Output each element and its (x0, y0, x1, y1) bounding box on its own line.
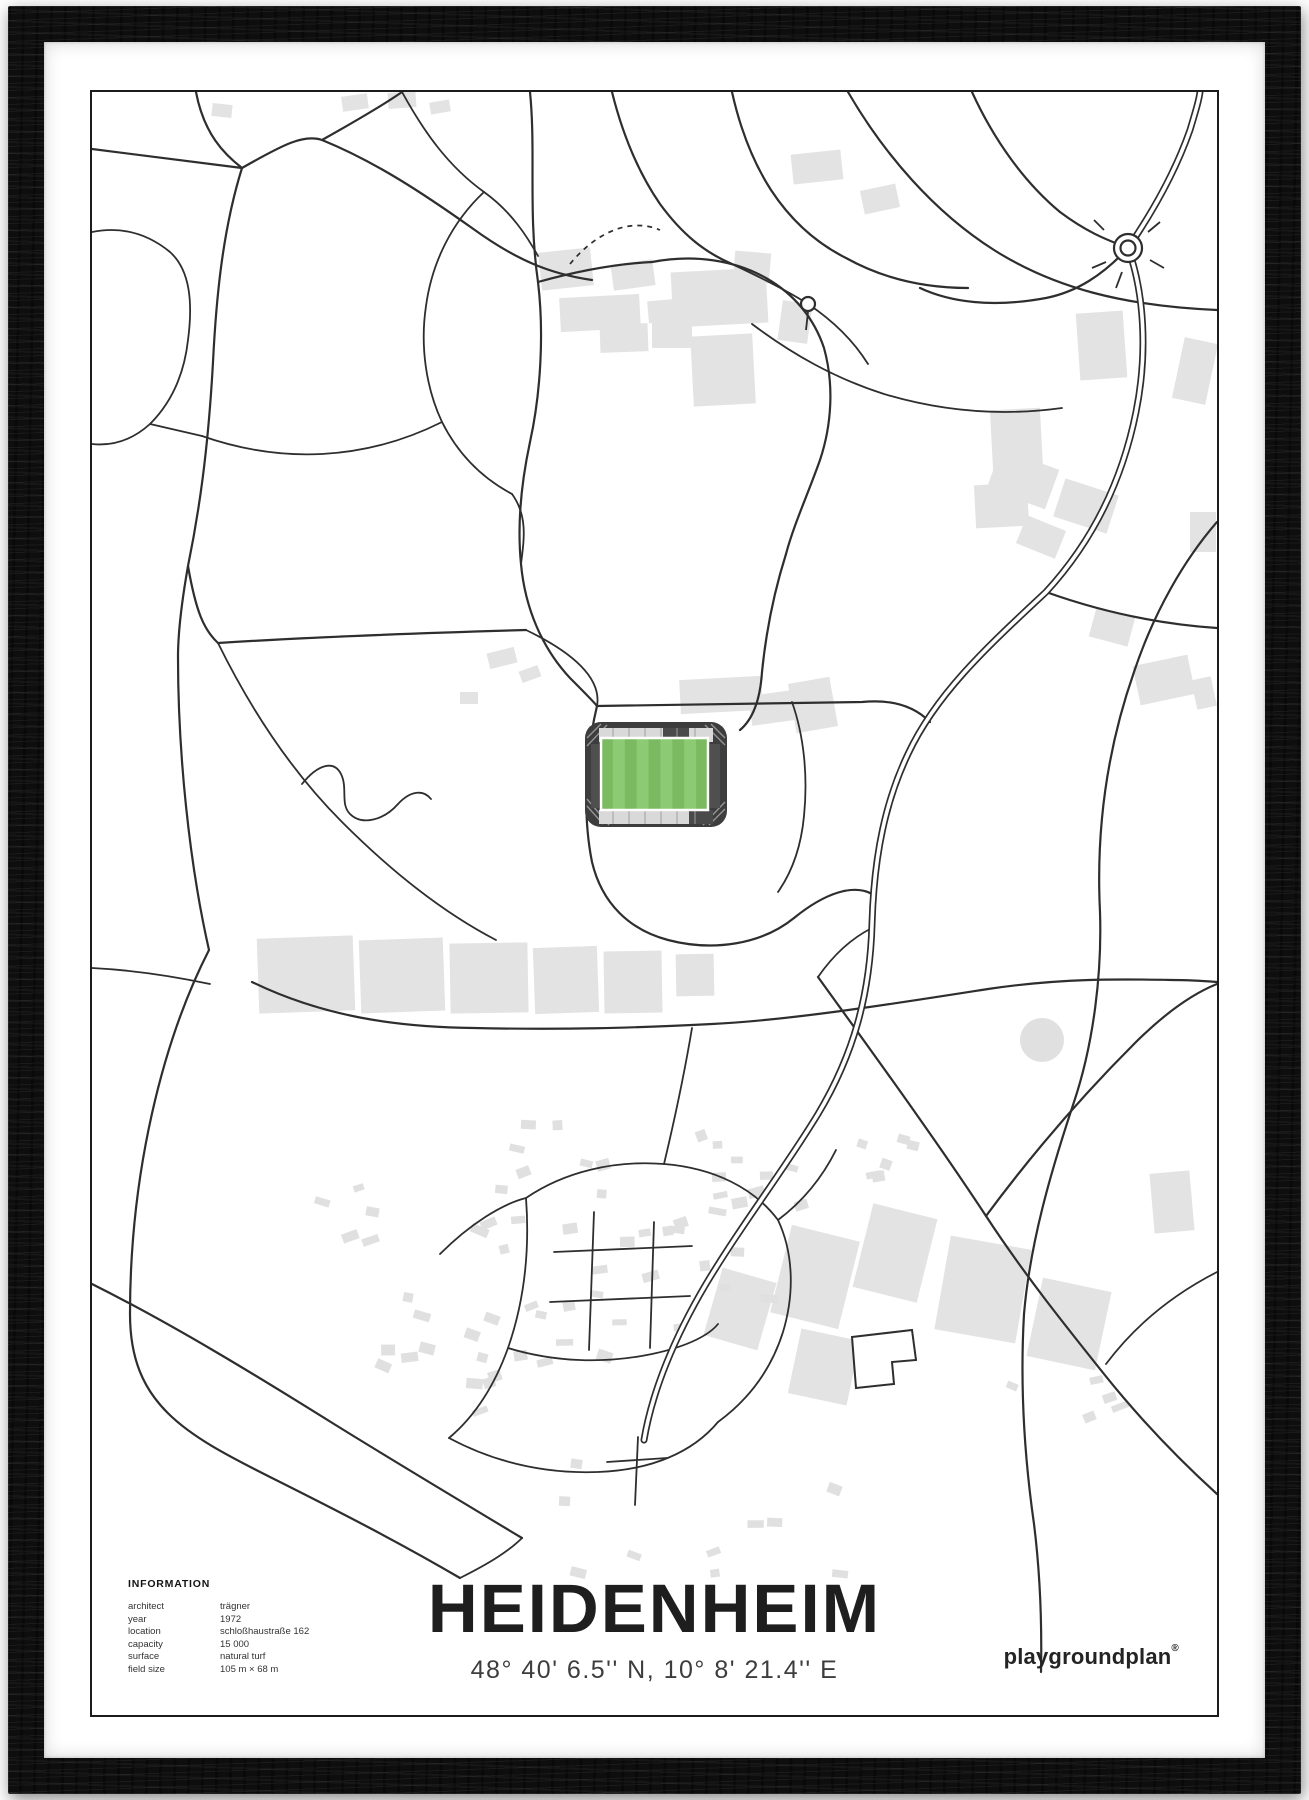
building (401, 1352, 419, 1363)
building (638, 1228, 651, 1237)
building (713, 1141, 723, 1149)
building (374, 1358, 392, 1373)
building (791, 149, 844, 184)
building (770, 1225, 860, 1329)
brand-name: playgroundplan (1004, 1644, 1172, 1669)
building (381, 1345, 395, 1356)
building (556, 1339, 573, 1346)
building (767, 1518, 783, 1527)
building (853, 1203, 938, 1302)
building (257, 935, 356, 1013)
building (580, 1159, 594, 1169)
map-art-area: INFORMATION architectträgner year1972 lo… (90, 90, 1219, 1717)
building (464, 1327, 481, 1342)
building (1053, 478, 1119, 533)
building (747, 1520, 763, 1528)
building (1006, 1380, 1019, 1391)
building (690, 333, 756, 406)
building (597, 1189, 607, 1199)
building (713, 1191, 728, 1200)
building (612, 1319, 627, 1325)
building (1190, 512, 1216, 552)
building (476, 1352, 488, 1363)
building (519, 665, 542, 683)
wood-frame: INFORMATION architectträgner year1972 lo… (8, 6, 1301, 1794)
building (402, 1292, 413, 1303)
building (449, 942, 528, 1013)
building (1102, 1391, 1118, 1404)
building (620, 1236, 635, 1247)
building (600, 323, 649, 353)
building (1089, 607, 1135, 646)
stadium-map (92, 92, 1217, 1715)
building (1149, 1170, 1194, 1233)
registered-mark: ® (1171, 1643, 1179, 1654)
building (314, 1196, 331, 1208)
poster-mat: INFORMATION architectträgner year1972 lo… (44, 42, 1265, 1758)
building (361, 1234, 380, 1247)
building (211, 103, 232, 118)
building (703, 1268, 776, 1351)
building (1172, 337, 1217, 405)
building (418, 1341, 436, 1355)
building (595, 1158, 611, 1172)
building (788, 1328, 860, 1405)
building (760, 1294, 778, 1303)
framed-poster: INFORMATION architectträgner year1972 lo… (0, 0, 1309, 1800)
building (591, 1290, 604, 1298)
building (483, 1312, 500, 1326)
building (696, 738, 708, 810)
building (562, 1222, 578, 1234)
building (533, 946, 599, 1014)
building (906, 1140, 919, 1152)
building (788, 677, 838, 734)
building (515, 1165, 531, 1179)
building (856, 1138, 868, 1149)
building (499, 1244, 510, 1255)
building (626, 1550, 641, 1562)
building (353, 1183, 365, 1192)
building (695, 1129, 708, 1143)
building (592, 1265, 608, 1275)
building (535, 1310, 547, 1320)
building (495, 1185, 508, 1195)
junction-node (801, 297, 815, 311)
building (559, 1496, 571, 1506)
building (879, 1158, 892, 1171)
building (509, 1144, 525, 1154)
building (601, 738, 613, 810)
building (613, 738, 625, 810)
building (596, 1348, 614, 1363)
building (662, 1225, 674, 1236)
building (660, 738, 672, 810)
building (552, 1120, 562, 1130)
building (990, 408, 1044, 491)
building (731, 1196, 748, 1209)
building (731, 1157, 743, 1164)
building (359, 938, 445, 1014)
building (652, 312, 692, 348)
building (387, 92, 416, 109)
stadium-stand-west (591, 744, 599, 808)
building (1089, 1375, 1104, 1385)
building (365, 1206, 379, 1217)
building (1082, 1410, 1097, 1423)
brand-logo: playgroundplan® (1004, 1644, 1179, 1670)
building (641, 1270, 660, 1283)
building (1076, 310, 1128, 380)
building (974, 483, 1029, 529)
building (521, 1120, 536, 1130)
building (826, 1482, 842, 1496)
building (1132, 655, 1195, 706)
building (570, 1458, 583, 1469)
building (486, 647, 517, 669)
building (511, 1216, 526, 1225)
building (637, 738, 649, 810)
building (934, 1236, 1031, 1344)
building (760, 1171, 773, 1180)
building (413, 1309, 432, 1322)
building (699, 1260, 710, 1271)
building (429, 99, 451, 114)
stadium (585, 722, 727, 827)
building (672, 738, 684, 810)
building (860, 184, 900, 215)
building (649, 738, 661, 810)
building (341, 1229, 360, 1243)
building (706, 1546, 721, 1557)
building (460, 692, 478, 704)
stadium-pitch (601, 738, 709, 810)
building (731, 1247, 745, 1257)
building (341, 93, 369, 111)
building (466, 1378, 483, 1390)
building (676, 954, 715, 997)
building (684, 738, 696, 810)
stadium-stand-east (710, 744, 720, 808)
building (1191, 676, 1217, 710)
pond (1020, 1018, 1064, 1062)
poster-title: HEIDENHEIM (92, 1574, 1217, 1643)
building (603, 950, 662, 1013)
building (625, 738, 637, 810)
building (708, 1206, 727, 1216)
